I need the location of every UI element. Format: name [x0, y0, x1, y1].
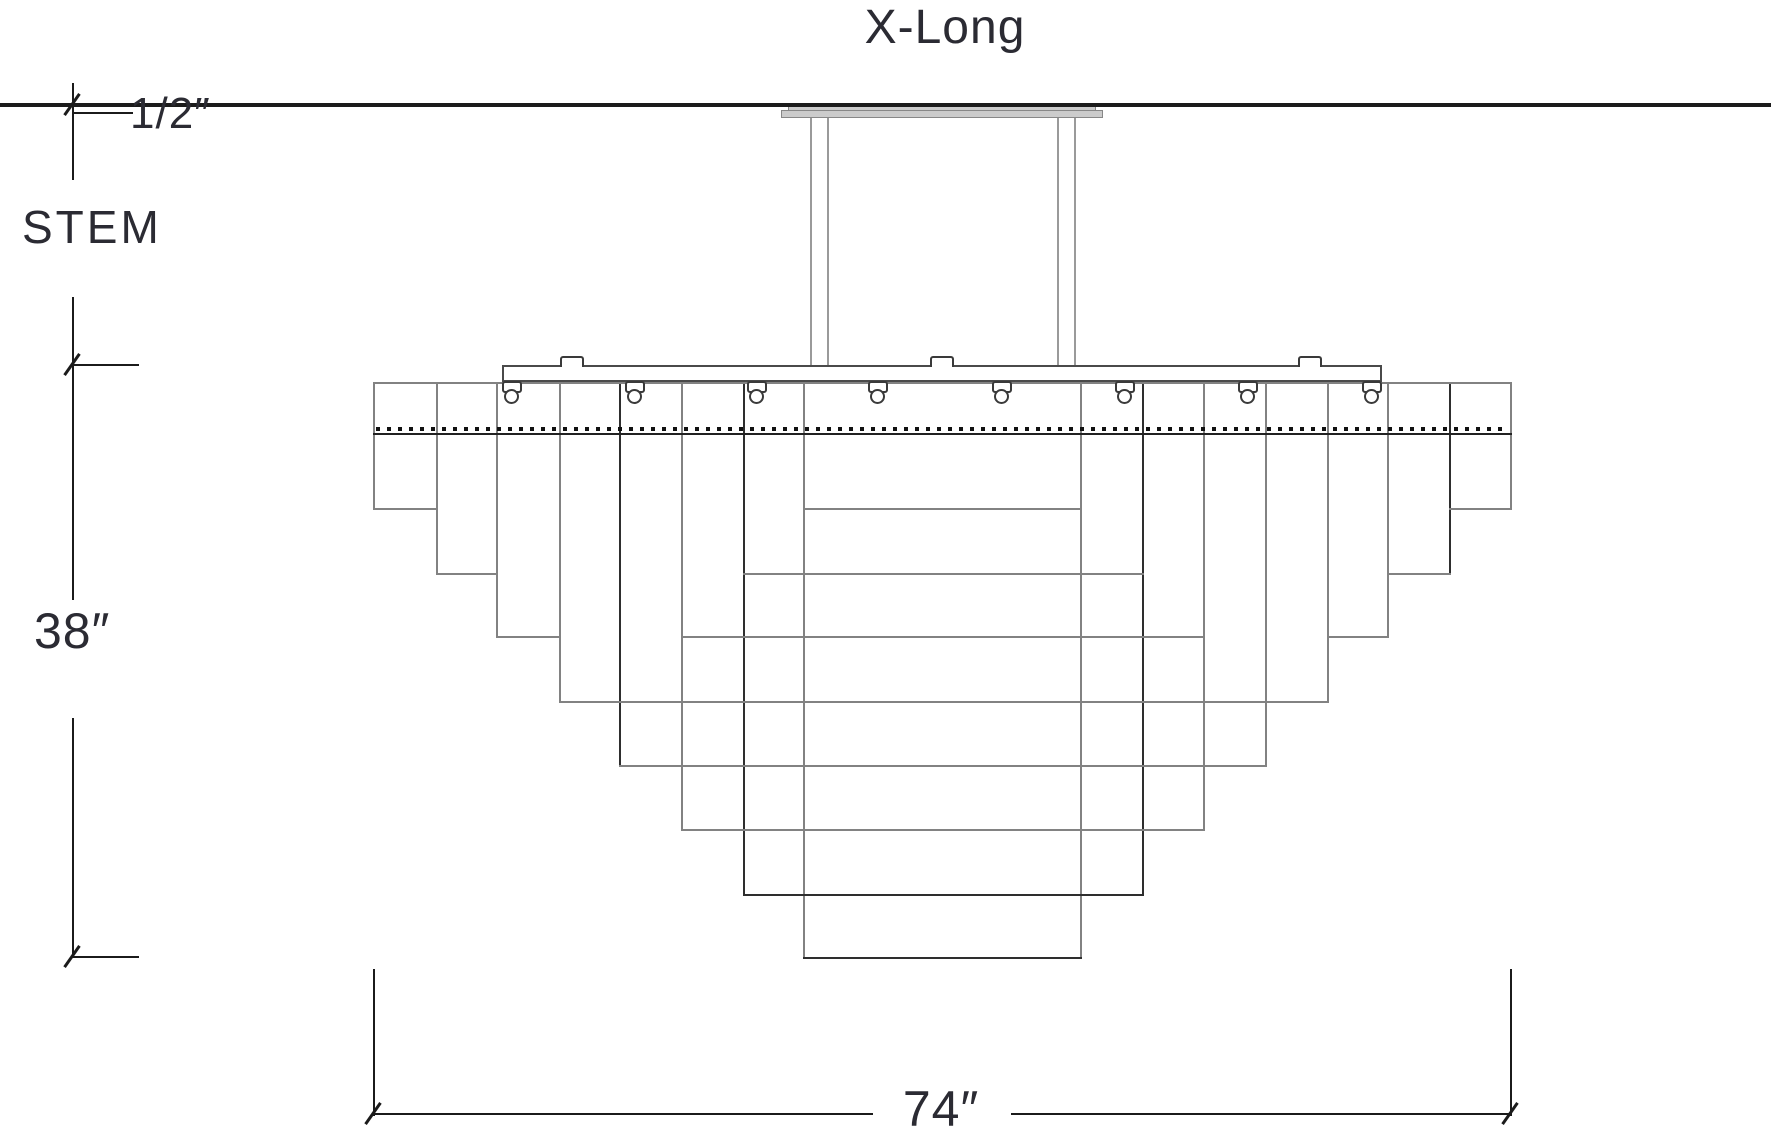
panel-bottom-line — [743, 573, 1144, 575]
panel-bottom-line — [373, 508, 438, 510]
stem-offset-dimension-label: 1/2″ — [130, 92, 211, 136]
ceiling-canopy-plate — [781, 110, 1103, 118]
panel-bottom-line — [803, 957, 1082, 959]
panel-edge-line — [1387, 384, 1389, 638]
hem-line — [373, 433, 1512, 435]
cable-clip-ring — [994, 389, 1009, 404]
panel-bottom-line — [743, 894, 1144, 896]
panel-edge-line — [803, 384, 805, 959]
page-title: X-Long — [865, 4, 1026, 52]
dimension-line — [373, 1113, 873, 1115]
mounting-tab — [560, 356, 584, 367]
technical-drawing-canvas: X-Long 1/2″ STEM 38″ 74″ — [0, 0, 1771, 1138]
dimension-extension-line — [1510, 969, 1512, 1116]
stem-tube-line — [1074, 118, 1076, 366]
panel-bottom-line — [619, 765, 1267, 767]
panel-edge-line — [619, 384, 621, 767]
panel-edge-line — [373, 384, 375, 510]
panel-edge-line — [1327, 384, 1329, 703]
dimension-line — [73, 112, 133, 114]
panel-bottom-line — [681, 829, 1205, 831]
stitch-dotted-line — [376, 427, 1508, 431]
cable-clip-ring — [1117, 389, 1132, 404]
panel-edge-line — [1080, 384, 1082, 959]
panel-edge-line — [1142, 384, 1144, 896]
panel-bottom-line — [559, 701, 1329, 703]
panel-edge-line — [1449, 384, 1451, 575]
panel-bottom-line — [496, 636, 561, 638]
panel-top-line — [373, 382, 1512, 384]
panel-edge-line — [1510, 384, 1512, 510]
mounting-tab — [930, 356, 954, 367]
stem-tube-line — [827, 118, 829, 366]
panel-edge-line — [496, 384, 498, 638]
ceiling-line — [0, 103, 1771, 107]
cable-clip-ring — [504, 389, 519, 404]
dimension-extension-line — [72, 718, 74, 957]
dimension-extension-line — [72, 297, 74, 600]
dimension-line — [1011, 1113, 1512, 1115]
hanger-bar — [502, 365, 1382, 382]
fixture-width-dimension-label: 74″ — [903, 1084, 979, 1134]
stem-tube-line — [1057, 118, 1059, 366]
panel-bottom-line — [681, 636, 1205, 638]
dimension-line — [72, 364, 139, 366]
cable-clip-ring — [749, 389, 764, 404]
mounting-tab — [1298, 356, 1322, 367]
cable-clip-ring — [870, 389, 885, 404]
panel-bottom-line — [1449, 508, 1512, 510]
cable-clip-ring — [1240, 389, 1255, 404]
panel-edge-line — [681, 384, 683, 831]
panel-edge-line — [743, 384, 745, 896]
cable-clip-ring — [627, 389, 642, 404]
fixture-height-dimension-label: 38″ — [34, 606, 110, 656]
dimension-extension-line — [373, 969, 375, 1116]
panel-bottom-line — [1387, 573, 1451, 575]
panel-edge-line — [1265, 384, 1267, 767]
stem-tube-line — [810, 118, 812, 366]
panel-edge-line — [559, 384, 561, 703]
panel-bottom-line — [1327, 636, 1389, 638]
panel-edge-line — [436, 384, 438, 575]
cable-clip-ring — [1364, 389, 1379, 404]
panel-bottom-line — [436, 573, 498, 575]
dimension-line — [72, 956, 139, 958]
stem-label: STEM — [22, 204, 162, 250]
panel-bottom-line — [803, 508, 1082, 510]
panel-edge-line — [1203, 384, 1205, 831]
